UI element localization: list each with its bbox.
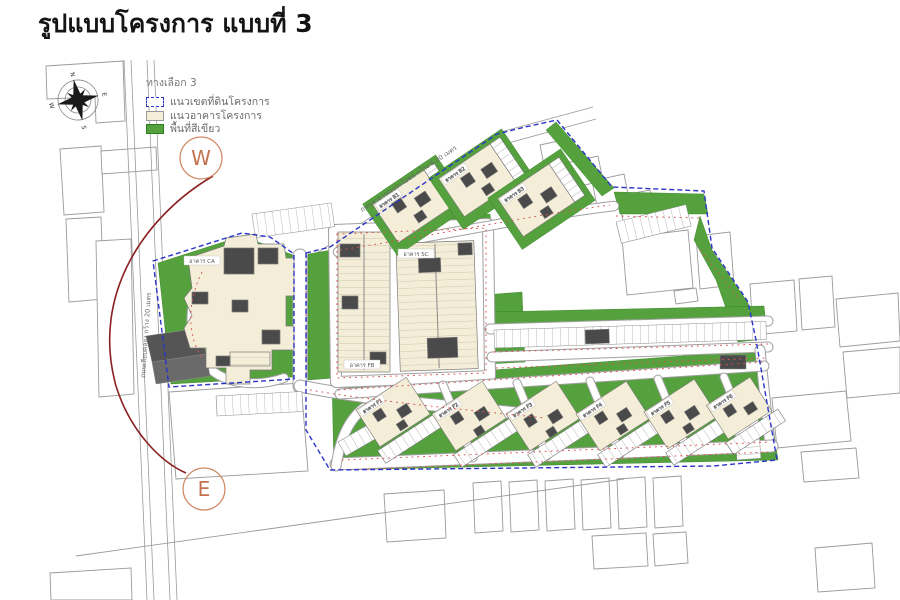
legend-label: พื้นที่สีเขียว xyxy=(170,123,220,136)
building-tag: อาคาร CA xyxy=(189,259,215,265)
legend: ทางเลือก 3 แนวเขตที่ดินโครงการ แนวอาคารโ… xyxy=(146,74,270,136)
legend-label: แนวอาคารโครงการ xyxy=(170,110,262,123)
building-tag: อาคาร FB xyxy=(350,363,375,369)
legend-item-building: แนวอาคารโครงการ xyxy=(146,110,270,123)
building-swatch-icon xyxy=(146,111,164,121)
building-tag: อาคาร SC xyxy=(403,252,428,258)
building-block-sc xyxy=(396,241,478,372)
marker-west-label: W xyxy=(191,146,211,170)
site-plan-drawing: อาคาร B1 อาคาร B2 อาคาร B3 xyxy=(0,0,900,600)
page-title: รูปแบบโครงการ แบบที่ 3 xyxy=(38,4,313,44)
boundary-swatch-icon xyxy=(146,97,164,107)
building-block-a xyxy=(338,232,390,372)
legend-label: แนวเขตที่ดินโครงการ xyxy=(170,96,270,109)
marker-east-label: E xyxy=(198,477,211,501)
legend-item-green: พื้นที่สีเขียว xyxy=(146,123,270,136)
compass-south-label: S xyxy=(80,125,88,130)
site-plan-page: รูปแบบโครงการ แบบที่ 3 ทางเลือก 3 แนวเขต… xyxy=(0,0,900,600)
compass-west-label: W xyxy=(47,102,55,109)
legend-item-boundary: แนวเขตที่ดินโครงการ xyxy=(146,96,270,109)
green-swatch-icon xyxy=(146,124,164,134)
legend-title: ทางเลือก 3 xyxy=(146,74,270,91)
